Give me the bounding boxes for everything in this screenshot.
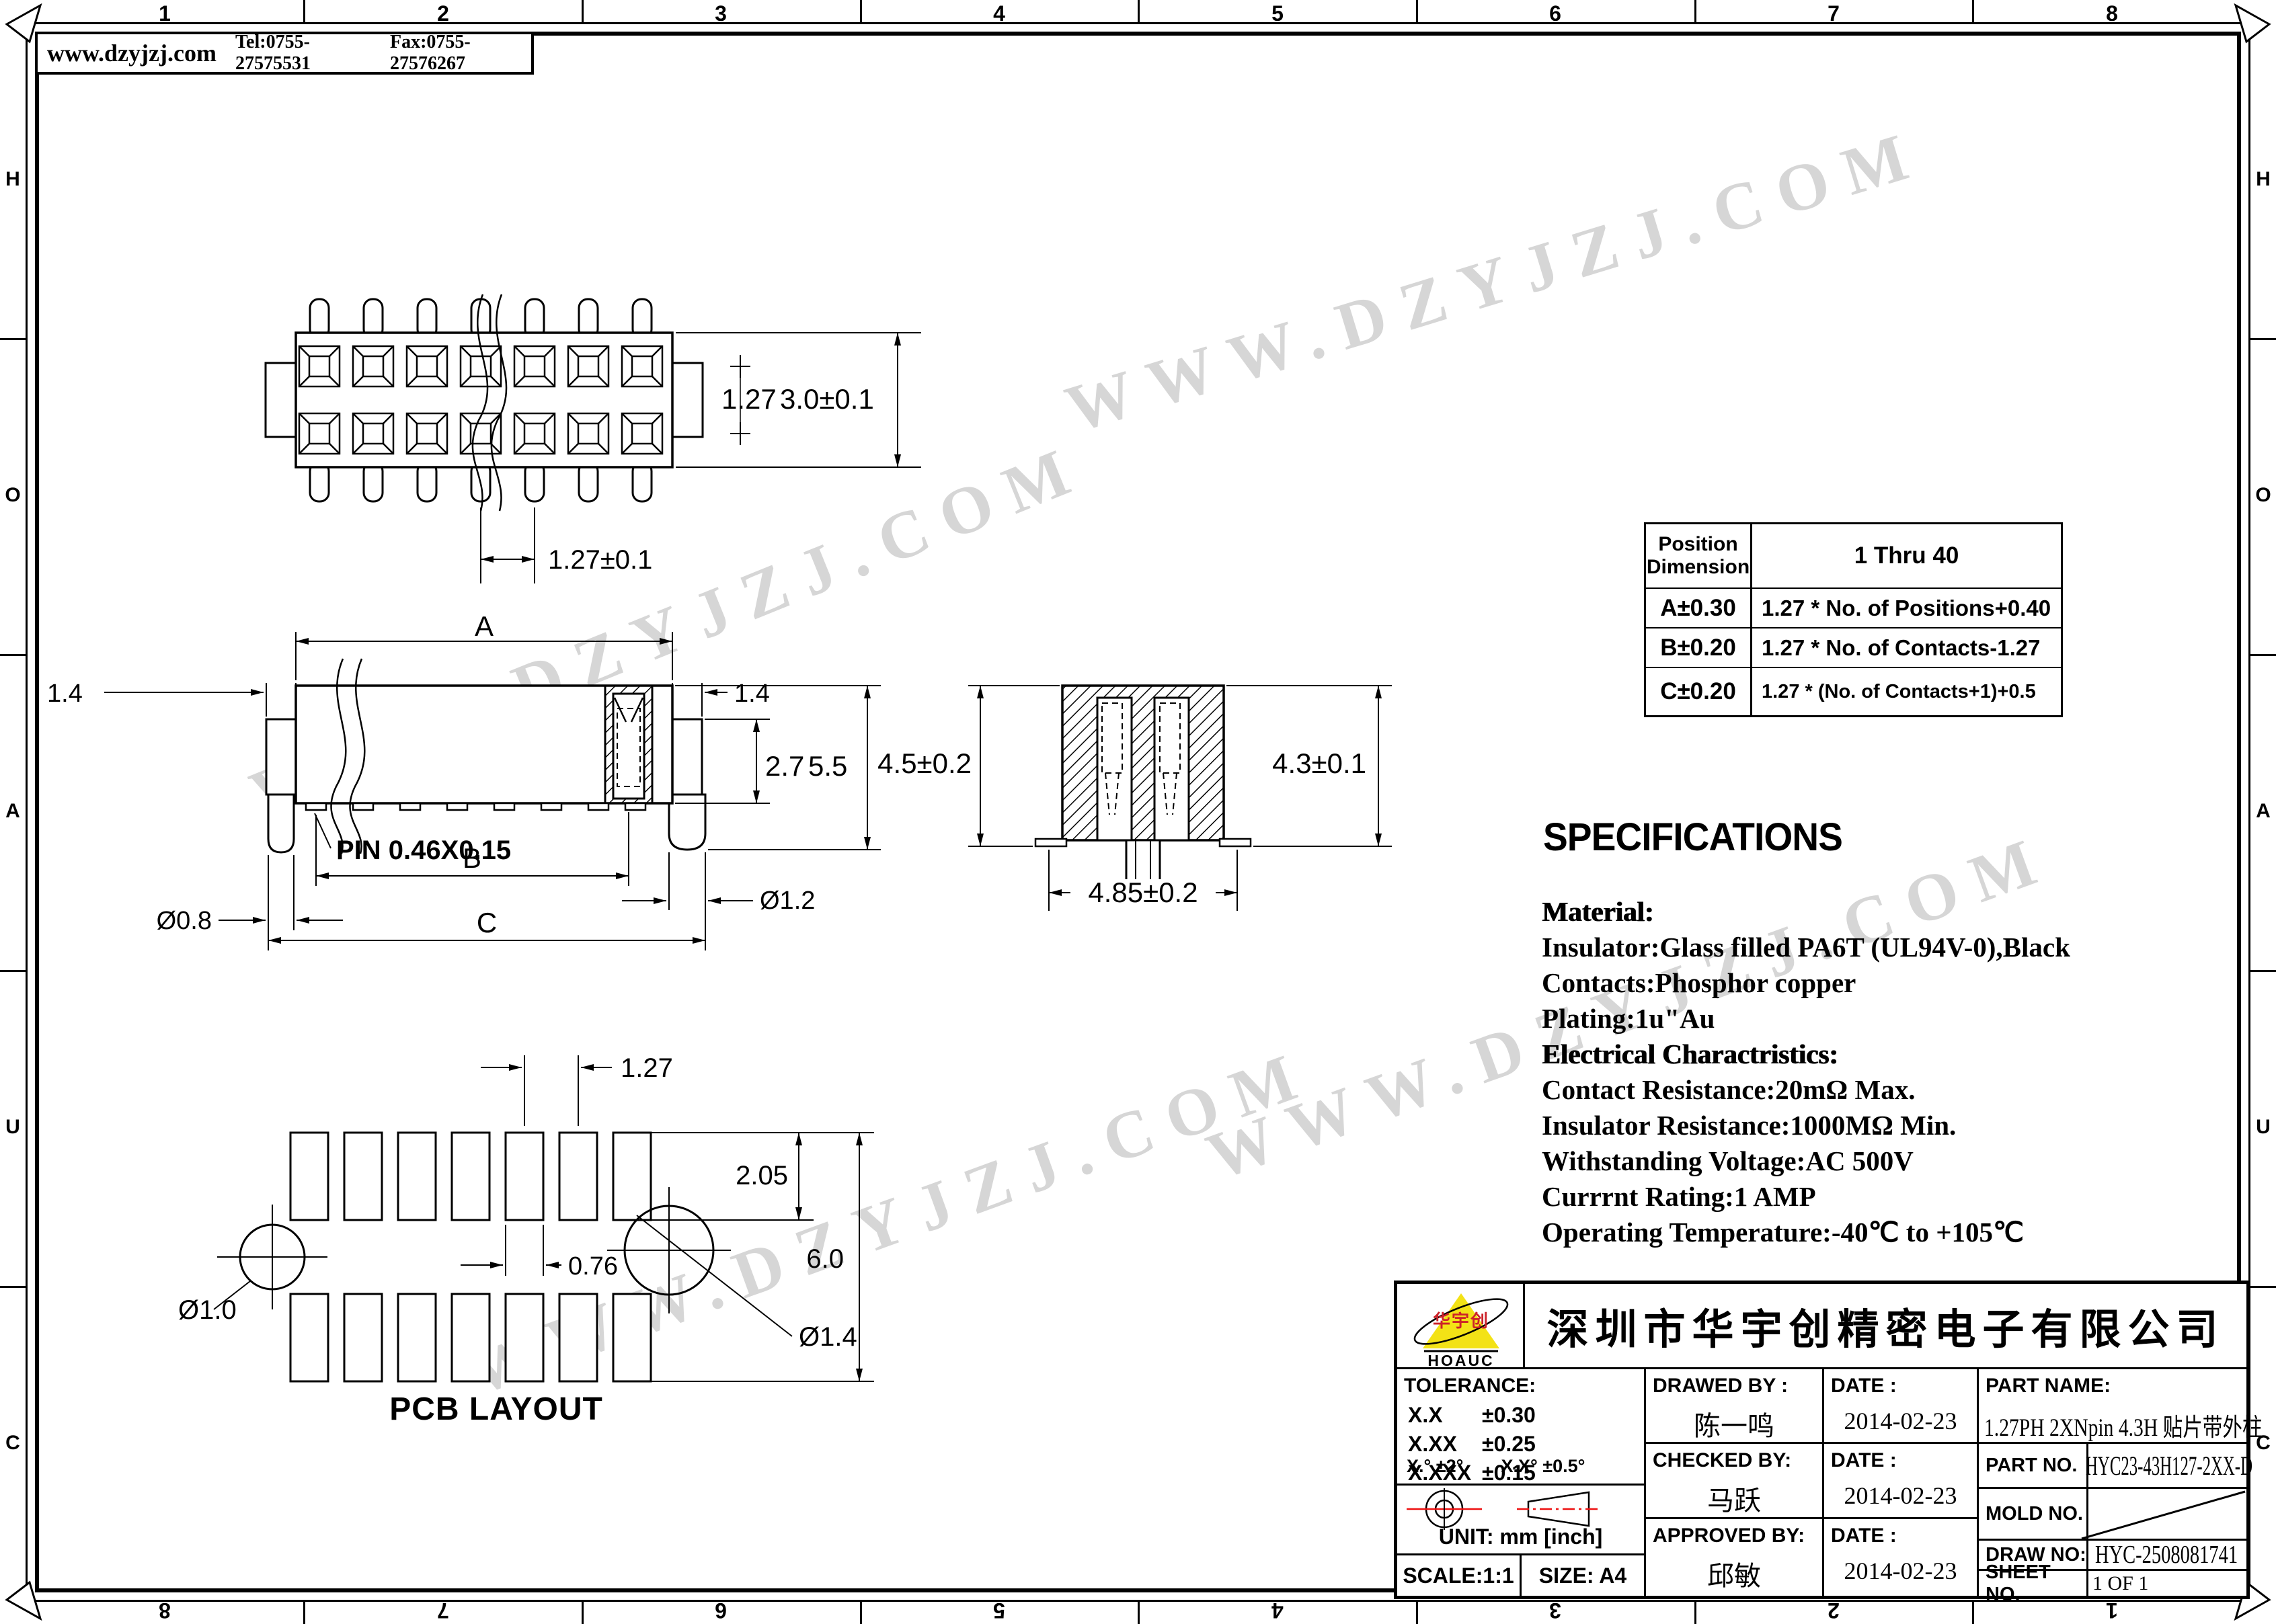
table-row: B±0.20 1.27 * No. of Contacts-1.27: [1646, 627, 2061, 667]
projection-symbol-cell: UNIT: mm [inch]: [1397, 1486, 1646, 1555]
date-drawed: 2014-02-23: [1824, 1407, 1977, 1435]
telephone: Tel:0755-27575531: [235, 32, 371, 75]
dim-top-height: 3.0±0.1: [780, 383, 874, 415]
tolerance-cell: TOLERANCE: X.X±0.30 X.XX±0.25 X.XXX±0.15…: [1397, 1369, 1646, 1486]
dim-front-lead: Ø0.8: [157, 907, 212, 935]
part-name-cell: PART NAME: 1.27PH 2XNpin 4.3H 贴片带外柱: [1979, 1369, 2246, 1444]
spec-line: Withstanding Voltage:AC 500V: [1542, 1145, 2254, 1180]
first-angle-projection-icon: [1407, 1488, 1600, 1530]
front-view-body: [266, 659, 705, 854]
spec-line: Insulator:Glass filled PA6T (UL94V-0),Bl…: [1542, 931, 2254, 967]
dim-pcb-hole-small: Ø1.0: [178, 1295, 237, 1325]
spec-line: Electrical Charactristics:: [1542, 1038, 2254, 1073]
table-row: C±0.20 1.27 * (No. of Contacts+1)+0.5: [1646, 667, 2061, 715]
part-no: HYC23-43H127-2XX-D: [2086, 1450, 2252, 1481]
spec-line: Contact Resistance:20mΩ Max.: [1542, 1073, 2254, 1109]
side-view-drawing: 4.5±0.2 4.3±0.1 4.85±0.2: [834, 645, 1466, 968]
top-view-body: [266, 294, 703, 511]
sheet-no: 1 OF 1: [2082, 1571, 2246, 1596]
date-approved-cell: DATE : 2014-02-23: [1824, 1519, 1979, 1596]
pin-size-label: PIN 0.46X0.15: [336, 836, 511, 865]
header-contact-box: www.dzyjzj.com Tel:0755-27575531 Fax:075…: [35, 32, 534, 75]
size-cell: SIZE: A4: [1522, 1555, 1646, 1596]
part-no-cell: PART NO. HYC23-43H127-2XX-D: [1979, 1444, 2246, 1489]
tolerance-angles: X.° ±2°X.X° ±0.5°: [1407, 1456, 1585, 1477]
drawed-by-cell: DRAWED BY : 陈一鸣: [1646, 1369, 1824, 1444]
dim-side-bottom: 4.85±0.2: [1088, 877, 1198, 908]
position-table: PositionDimension 1 Thru 40 A±0.30 1.27 …: [1644, 522, 2063, 717]
spec-line: Material:: [1542, 895, 2254, 931]
dim-front-tab-right: 1.4: [734, 680, 770, 708]
date-checked-cell: DATE : 2014-02-23: [1824, 1444, 1979, 1519]
logo-brand: HOAUC: [1427, 1352, 1494, 1369]
mold-no-blank-diagonal: [2082, 1489, 2246, 1541]
checked-by-name: 马跃: [1646, 1479, 1822, 1518]
dim-pcb-hole-large: Ø1.4: [799, 1322, 857, 1352]
approved-by-name: 邱敏: [1646, 1554, 1822, 1593]
dim-front-c: C: [477, 907, 497, 938]
website: www.dzyjzj.com: [47, 39, 217, 67]
date-approved: 2014-02-23: [1824, 1557, 1977, 1585]
dim-front-tab-left: 1.4: [47, 680, 83, 708]
date-checked: 2014-02-23: [1824, 1481, 1977, 1510]
title-block: 华宇创 HOAUC 深圳市华宇创精密电子有限公司 TOLERANCE: X.X±…: [1394, 1281, 2250, 1599]
table-header-range: 1 Thru 40: [1752, 524, 2061, 587]
specifications-list: Material: Insulator:Glass filled PA6T (U…: [1542, 895, 2254, 1252]
dim-side-right: 4.3±0.1: [1272, 747, 1366, 779]
top-view-drawing: 1.27 3.0±0.1 1.27±0.1: [242, 282, 1049, 618]
logo-text: 华宇创: [1433, 1311, 1489, 1331]
front-view-drawing: A 1.4 1.4 2.7 5.5 PIN 0.46X0.15 B C Ø0.8…: [27, 618, 914, 1002]
dim-side-left: 4.5±0.2: [877, 747, 972, 779]
drawed-by-name: 陈一鸣: [1646, 1404, 1822, 1443]
spec-line: Plating:1u"Au: [1542, 1002, 2254, 1038]
dim-pcb-pad-h: 2.05: [736, 1161, 788, 1190]
dim-pcb-pad-w: 0.76: [568, 1252, 618, 1281]
dim-top-row-pitch: 1.27: [721, 383, 777, 415]
checked-by-cell: CHECKED BY: 马跃: [1646, 1444, 1824, 1519]
sheet-no-cell: SHEET NO. 1 OF 1: [1979, 1571, 2246, 1596]
table-header-dimension: PositionDimension: [1646, 524, 1752, 587]
dim-pcb-span: 6.0: [806, 1244, 844, 1274]
date-drawed-cell: DATE : 2014-02-23: [1824, 1369, 1979, 1444]
part-name: 1.27PH 2XNpin 4.3H 贴片带外柱: [1984, 1407, 2263, 1443]
tolerance-label: TOLERANCE:: [1404, 1375, 1536, 1397]
draw-no: HYC-2508081741: [2095, 1540, 2238, 1570]
dim-pcb-pitch: 1.27: [621, 1053, 673, 1083]
fax: Fax:0755-27576267: [390, 32, 531, 75]
scale-cell: SCALE:1:1: [1397, 1555, 1522, 1596]
table-row: A±0.30 1.27 * No. of Positions+0.40: [1646, 587, 2061, 627]
unit-label: UNIT: mm [inch]: [1397, 1525, 1644, 1549]
company-name: 深圳市华宇创精密电子有限公司: [1525, 1284, 2246, 1369]
specifications-title: SPECIFICATIONS: [1543, 815, 1842, 860]
company-logo: 华宇创 HOAUC: [1397, 1284, 1525, 1369]
pcb-layout-title: PCB LAYOUT: [389, 1391, 603, 1427]
mold-no-cell: MOLD NO.: [1979, 1489, 2246, 1541]
pcb-layout-drawing: 1.27 2.05 6.0 0.76 Ø1.0 Ø1.4 PCB LAYOUT: [175, 1035, 1116, 1472]
spec-line: Operating Temperature:-40℃ to +105℃: [1542, 1216, 2254, 1252]
spec-line: Contacts:Phosphor copper: [1542, 967, 2254, 1002]
dim-front-body-h: 2.7: [765, 750, 804, 782]
dim-front-b: B: [463, 842, 481, 874]
dim-top-pitch: 1.27±0.1: [548, 545, 652, 575]
spec-line: Insulator Resistance:1000MΩ Min.: [1542, 1109, 2254, 1145]
dim-front-post: Ø1.2: [760, 887, 815, 915]
side-view-body: [1035, 686, 1251, 897]
dim-front-a: A: [475, 610, 494, 642]
approved-by-cell: APPROVED BY: 邱敏: [1646, 1519, 1824, 1596]
spec-line: Currrnt Rating:1 AMP: [1542, 1180, 2254, 1216]
drawing-sheet: WWW.DZYJZJ.COM WWW.DZYJZJ.COM WWW.DZYJZJ…: [0, 0, 2276, 1624]
